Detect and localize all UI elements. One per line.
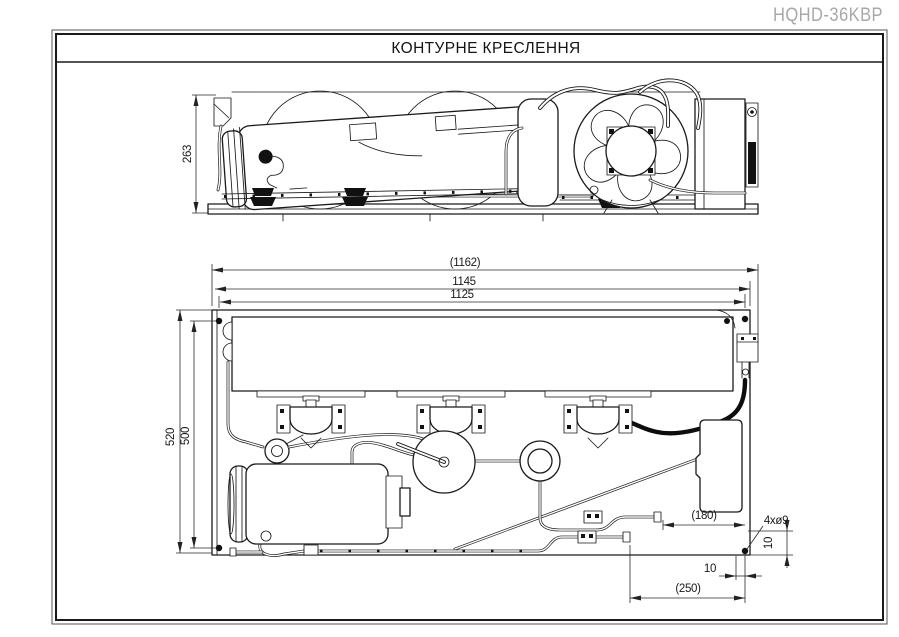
dim-10v-label: 10 xyxy=(763,537,775,549)
dim-250-label: (250) xyxy=(675,583,701,595)
dim-widths: 520 500 xyxy=(165,310,216,553)
model-number: HQHD-36KBP xyxy=(773,5,883,26)
plan-view: (1162) 1145 1125 520 500 (180) (250) 4xø… xyxy=(165,257,793,603)
dim-180-label: (180) xyxy=(691,510,717,522)
dim-1125-label: 1125 xyxy=(450,289,474,301)
dim-1145-label: 1145 xyxy=(452,276,476,288)
dim-holes-label: 4xø9 xyxy=(764,515,788,527)
dim-263: 263 xyxy=(182,95,216,213)
dim-10h-label: 10 xyxy=(704,563,716,575)
page-title: КОНТУРНЕ КРЕСЛЕННЯ xyxy=(391,40,580,57)
plan-compressor xyxy=(228,464,410,556)
dim-1162-label: (1162) xyxy=(450,257,481,269)
plan-condenser-coil xyxy=(223,310,735,397)
plan-electrical-box xyxy=(696,420,742,512)
dim-500-label: 500 xyxy=(180,427,192,445)
dim-263-label: 263 xyxy=(182,145,194,163)
side-terminal xyxy=(746,103,758,187)
contour-drawing: HQHD-36KBP КОНТУРНЕ КРЕСЛЕННЯ xyxy=(0,0,899,637)
side-receiver xyxy=(518,99,558,206)
drawing-sheet: HQHD-36KBP КОНТУРНЕ КРЕСЛЕННЯ xyxy=(0,0,899,637)
dim-520-label: 520 xyxy=(165,428,177,446)
plan-ring xyxy=(520,441,560,481)
side-view: 263 xyxy=(182,80,758,221)
